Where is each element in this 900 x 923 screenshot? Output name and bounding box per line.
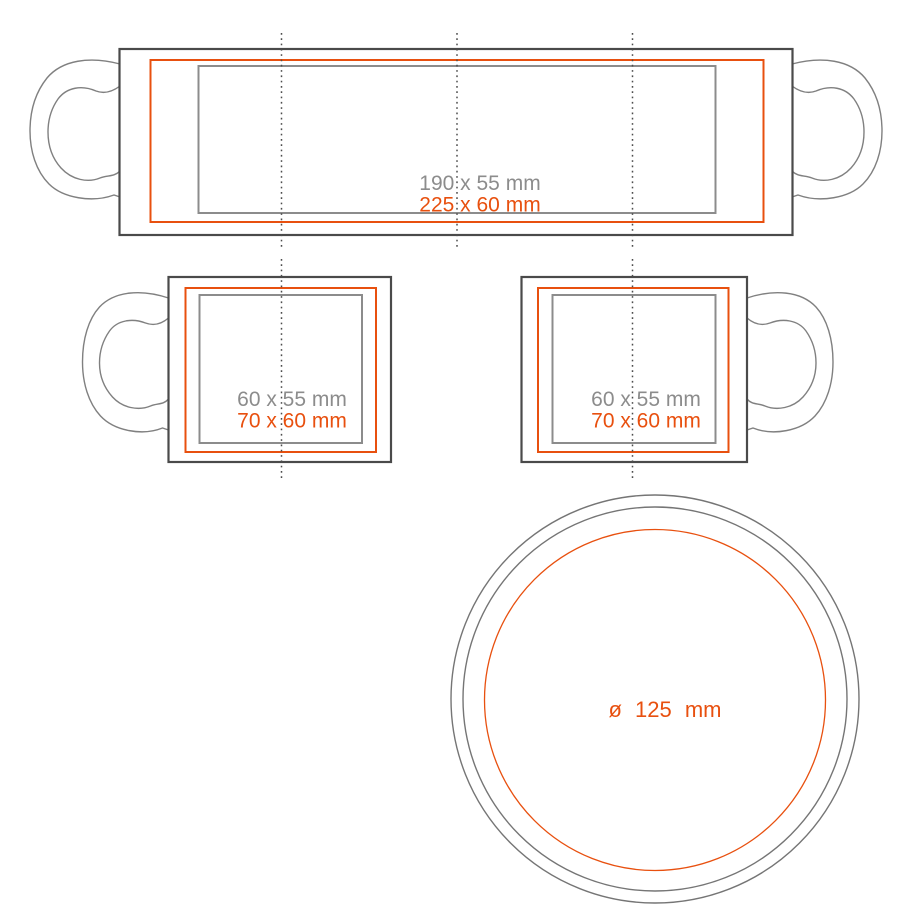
standard-print-area-label: 60 x 55 mm: [591, 388, 701, 411]
mug-body-outline: [169, 277, 392, 462]
mug-body-outline: [522, 277, 748, 462]
max-print-area-label: 70 x 60 mm: [237, 410, 347, 433]
mug-handle-left-outline: [83, 293, 169, 432]
mug-handle-left-outline: [30, 60, 120, 199]
mug-print-template-diagram: 190 x 55 mm 225 x 60 mm 60 x 55 mm 70 x …: [0, 0, 900, 923]
standard-print-area-label: 60 x 55 mm: [237, 388, 347, 411]
right-handle-view: [522, 277, 834, 462]
standard-print-area-label: 190 x 55 mm: [419, 172, 540, 195]
bottom-view: ø 125 mm: [451, 495, 859, 903]
max-print-area-label: 70 x 60 mm: [591, 410, 701, 433]
left-handle-view: [83, 277, 392, 462]
diameter-label: ø 125 mm: [608, 697, 721, 722]
mug-handle-right-outline: [792, 60, 882, 199]
mug-handle-right-outline: [747, 293, 833, 432]
diagram-canvas: 190 x 55 mm 225 x 60 mm 60 x 55 mm 70 x …: [0, 0, 900, 923]
max-print-area-label: 225 x 60 mm: [419, 194, 540, 217]
